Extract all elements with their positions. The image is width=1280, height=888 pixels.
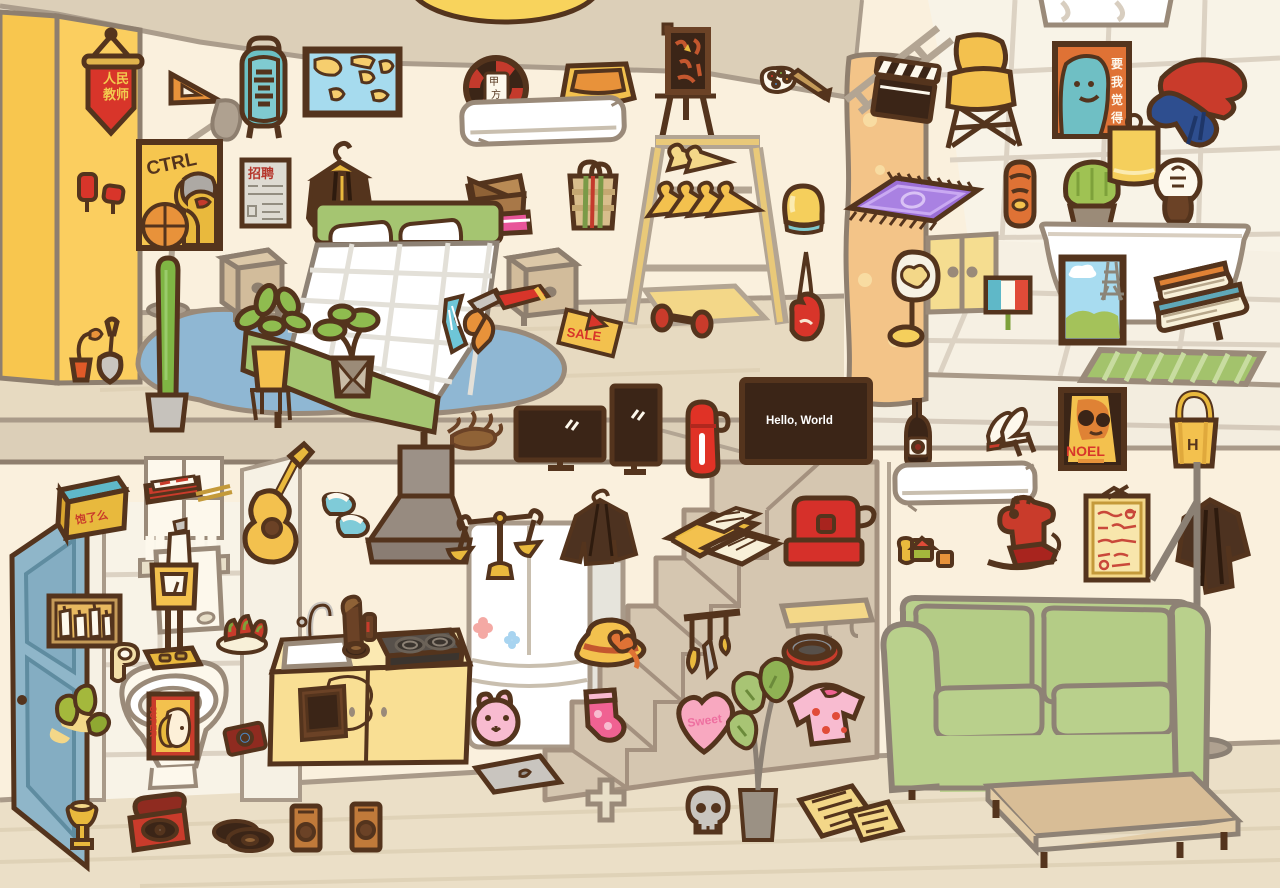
svg-text:Hello, World: Hello, World bbox=[766, 415, 833, 427]
svg-text:人民: 人民 bbox=[103, 71, 129, 86]
svg-text:SUPER: SUPER bbox=[148, 706, 158, 738]
svg-text:要: 要 bbox=[1111, 56, 1123, 71]
svg-text:得: 得 bbox=[1110, 110, 1123, 125]
svg-text:NOEL: NOEL bbox=[1066, 443, 1105, 459]
svg-text:觉: 觉 bbox=[1111, 92, 1123, 107]
svg-text:招聘: 招聘 bbox=[248, 166, 274, 181]
svg-text:教师: 教师 bbox=[102, 87, 129, 102]
svg-text:我: 我 bbox=[1111, 74, 1123, 89]
svg-text:H: H bbox=[1187, 437, 1199, 454]
svg-text:甲: 甲 bbox=[489, 77, 499, 88]
